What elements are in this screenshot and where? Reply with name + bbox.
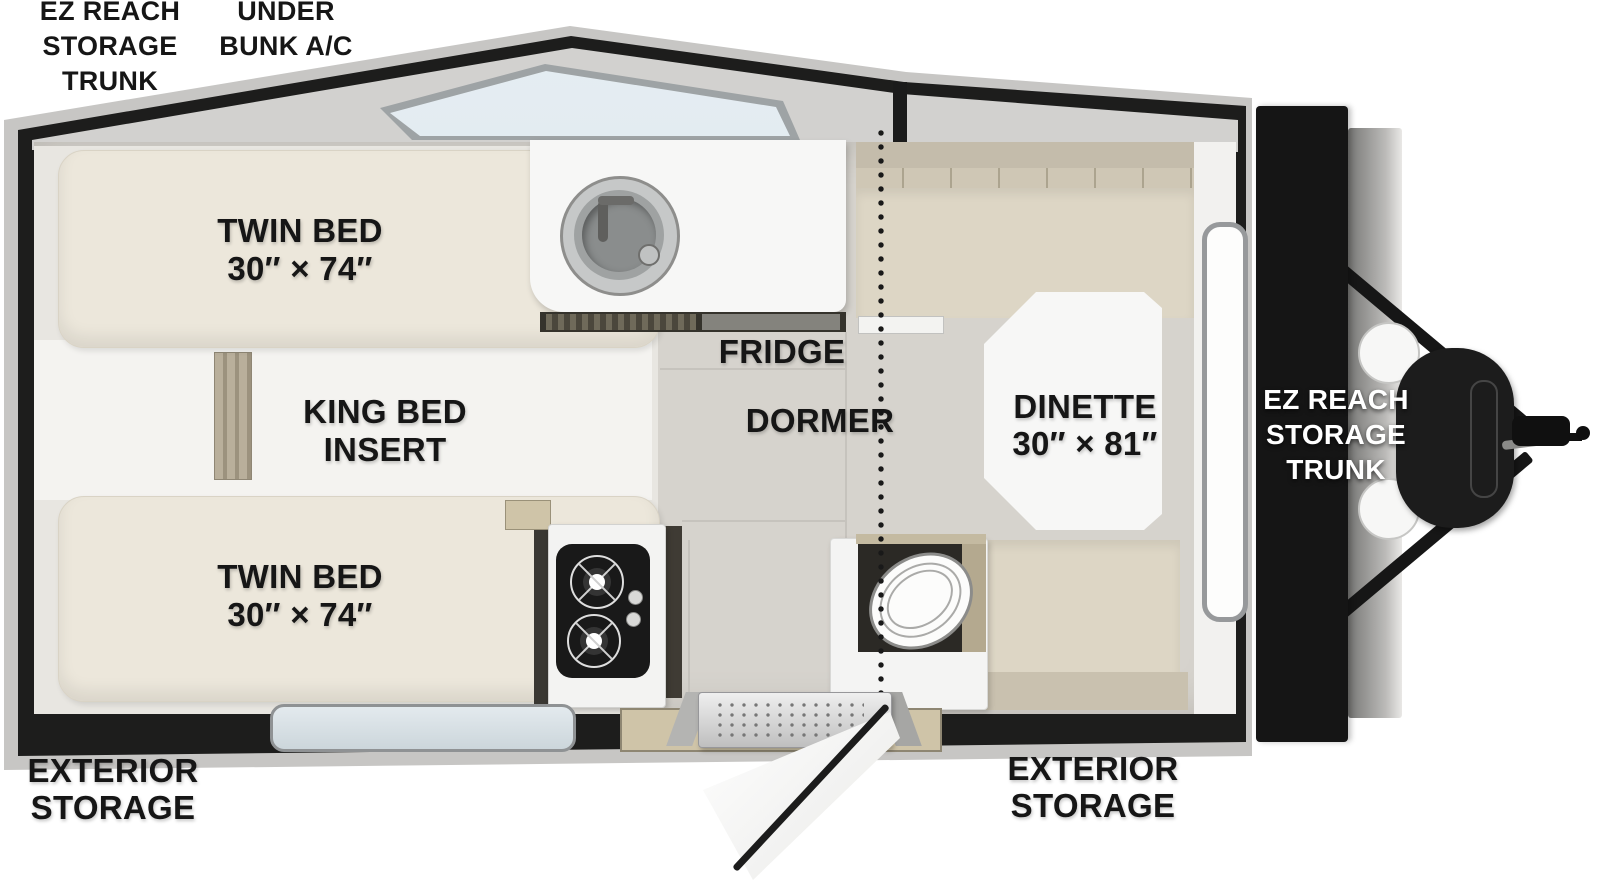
label-line: BUNK A/C — [186, 29, 386, 64]
label-line: TRUNK — [1236, 452, 1436, 487]
label-line: TWIN BED — [150, 558, 450, 596]
label-line: INSERT — [235, 431, 535, 469]
sink-drain — [638, 244, 660, 266]
hitch-coupler — [1512, 416, 1570, 446]
label-line: DINETTE — [975, 388, 1195, 425]
stove-knob-icon — [628, 590, 643, 605]
label-ez-reach-rear: EZ REACH STORAGE TRUNK — [10, 0, 210, 99]
hitch-ball-icon — [1576, 426, 1590, 440]
label-line: STORAGE — [1236, 417, 1436, 452]
tank-cover-handle-icon — [1470, 380, 1498, 498]
label-line: STORAGE — [10, 29, 210, 64]
label-line: TRUNK — [10, 64, 210, 99]
dinette-bench-tuft-bottom — [980, 672, 1188, 710]
faucet-icon — [598, 200, 608, 242]
tile-seam — [682, 520, 846, 522]
label-line: 30″ × 74″ — [150, 596, 450, 634]
label-line: STORAGE — [13, 789, 213, 826]
label-ez-reach-front: EZ REACH STORAGE TRUNK — [1236, 382, 1436, 487]
label-twin-bed-bottom: TWIN BED 30″ × 74″ — [150, 558, 450, 634]
cooktop — [556, 544, 650, 678]
label-dinette: DINETTE 30″ × 81″ — [975, 388, 1195, 462]
label-dormer: DORMER — [720, 403, 920, 439]
label-exterior-storage-right: EXTERIOR STORAGE — [993, 750, 1193, 824]
label-line: UNDER — [186, 0, 386, 29]
wood-shelf — [505, 500, 551, 530]
burner-cap-icon — [586, 633, 602, 649]
label-line: KING BED — [235, 393, 535, 431]
faucet-arm-icon — [598, 196, 634, 205]
fridge-door-front — [702, 314, 840, 330]
fridge-vent — [546, 314, 696, 330]
label-fridge: FRIDGE — [682, 334, 882, 370]
label-under-bunk-ac: UNDER BUNK A/C — [186, 0, 386, 64]
label-king-bed-insert: KING BED INSERT — [235, 393, 535, 469]
label-line: TWIN BED — [150, 212, 450, 250]
label-exterior-storage-left: EXTERIOR STORAGE — [13, 752, 213, 826]
toilet-cabinet-wood-trim — [856, 534, 986, 544]
bench-shelf — [858, 316, 944, 334]
label-line: 30″ × 74″ — [150, 250, 450, 288]
burner-cap-icon — [589, 574, 605, 590]
label-twin-bed-top: TWIN BED 30″ × 74″ — [150, 212, 450, 288]
floorplan-canvas: EZ REACH STORAGE TRUNK UNDER BUNK A/C TW… — [0, 0, 1600, 882]
label-line: EZ REACH — [1236, 382, 1436, 417]
dinette-bench-tuft-top — [856, 168, 1194, 190]
burner-icon — [570, 555, 624, 609]
dinette-bench-seat-bottom — [978, 540, 1180, 676]
stove-knob-icon — [626, 612, 641, 627]
label-line: 30″ × 81″ — [975, 425, 1195, 462]
label-line: STORAGE — [993, 787, 1193, 824]
stove-side-panel — [534, 524, 548, 704]
dinette-bench-back-top — [856, 142, 1194, 170]
label-line: EXTERIOR — [993, 750, 1193, 787]
tile-seam — [688, 540, 690, 704]
label-line: EZ REACH — [10, 0, 210, 29]
exterior-storage-hatch — [270, 704, 576, 752]
label-line: EXTERIOR — [13, 752, 213, 789]
dormer-roof-notch — [893, 82, 907, 142]
burner-icon — [567, 614, 621, 668]
